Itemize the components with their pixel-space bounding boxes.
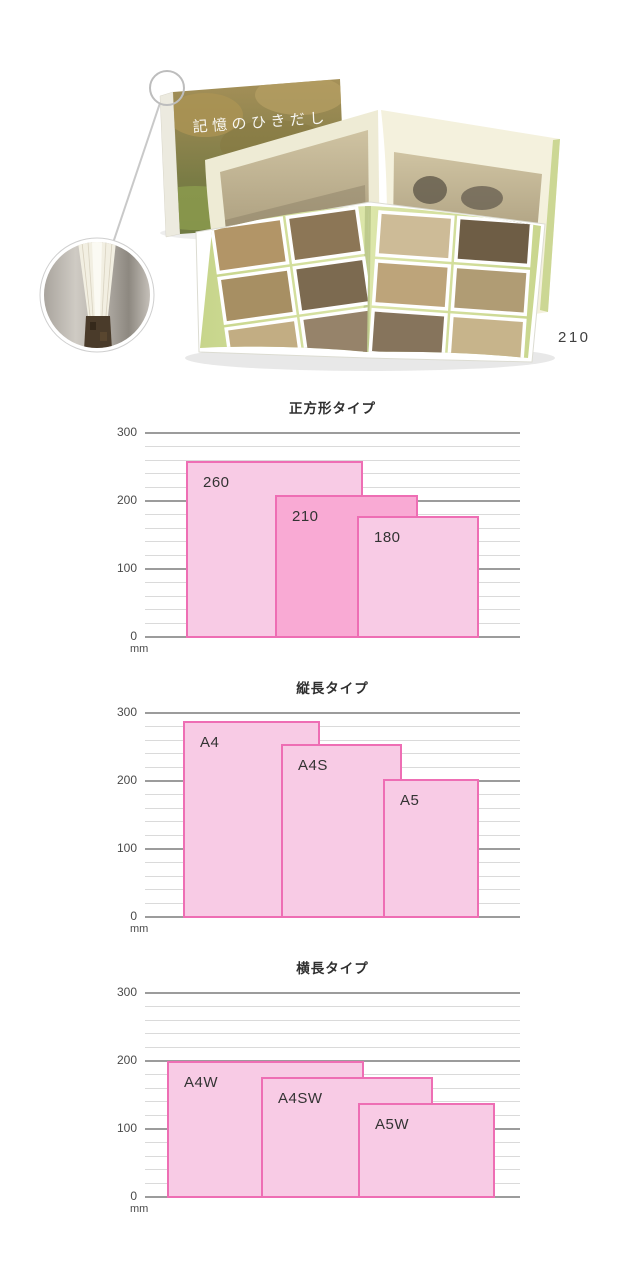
y-axis-unit: mm: [130, 1203, 148, 1215]
gridline-major: [145, 432, 520, 434]
gridline-minor: [145, 446, 520, 447]
photo-tree: [461, 186, 503, 210]
size-bar-A5W: A5W: [358, 1103, 495, 1198]
chart-plot: 260210180: [145, 433, 520, 637]
page: 記憶のひきだし: [0, 0, 640, 1280]
size-bar-label: 210: [292, 508, 319, 525]
y-tick-label: 300: [95, 425, 137, 439]
y-tick-label: 200: [95, 773, 137, 787]
gridline-minor: [145, 1006, 520, 1007]
book-size-label: 210: [558, 329, 591, 346]
y-tick-label: 100: [95, 561, 137, 575]
y-tick-label: 0: [95, 629, 137, 643]
y-tick-label: 200: [95, 1053, 137, 1067]
y-tick-label: 100: [95, 1121, 137, 1135]
size-bar-A5: A5: [383, 779, 479, 918]
hero-product-photo: 記憶のひきだし: [0, 0, 640, 390]
y-tick-label: 100: [95, 841, 137, 855]
y-tick-label: 200: [95, 493, 137, 507]
y-tick-label: 300: [95, 985, 137, 999]
photo-tree: [413, 176, 447, 204]
size-bar-label: A4W: [184, 1074, 218, 1091]
size-bar-label: A5W: [375, 1116, 409, 1133]
chart-landscape-type: 横長タイプ A4WA4SWA5W 0100200300mm: [0, 950, 640, 1230]
size-bar-180: 180: [357, 516, 479, 638]
size-bar-label: 180: [374, 529, 401, 546]
y-tick-label: 300: [95, 705, 137, 719]
y-tick-label: 0: [95, 909, 137, 923]
chart-title: 縦長タイプ: [145, 677, 520, 697]
gridline-minor: [145, 1047, 520, 1048]
callout-line: [112, 103, 160, 246]
gridline-major: [145, 712, 520, 714]
size-bar-label: A5: [400, 792, 419, 809]
y-axis-unit: mm: [130, 643, 148, 655]
gridline-minor: [145, 1033, 520, 1034]
chart-portrait-type: 縦長タイプ A4A4SA5 0100200300mm: [0, 670, 640, 950]
open-photobook-flat: [196, 202, 545, 374]
y-tick-label: 0: [95, 1189, 137, 1203]
size-bar-label: 260: [203, 474, 230, 491]
chart-plot: A4WA4SWA5W: [145, 993, 520, 1197]
size-bar-label: A4: [200, 734, 219, 751]
chart-square-type: 正方形タイプ 260210180 0100200300mm: [0, 390, 640, 670]
y-axis-unit: mm: [130, 923, 148, 935]
gridline-major: [145, 992, 520, 994]
chart-plot: A4A4SA5: [145, 713, 520, 917]
gridline-minor: [145, 1020, 520, 1021]
chart-title: 正方形タイプ: [145, 397, 520, 417]
size-bar-label: A4SW: [278, 1090, 323, 1107]
size-bar-label: A4S: [298, 757, 328, 774]
photobook-illustration: 記憶のひきだし: [0, 0, 640, 390]
chart-title: 横長タイプ: [145, 957, 520, 977]
